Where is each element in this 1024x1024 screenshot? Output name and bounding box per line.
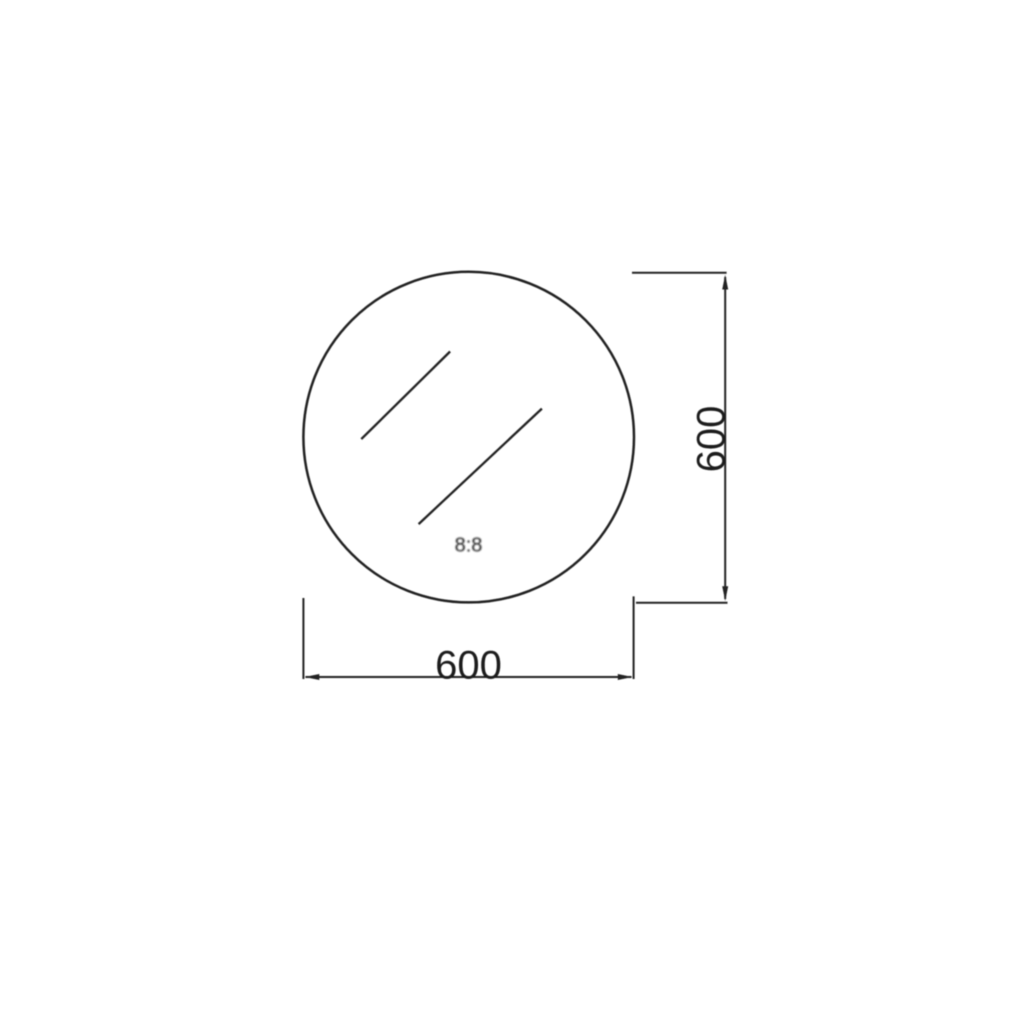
svg-text:600: 600: [435, 644, 502, 688]
svg-text:600: 600: [690, 406, 734, 473]
svg-text:8:8: 8:8: [455, 535, 483, 557]
